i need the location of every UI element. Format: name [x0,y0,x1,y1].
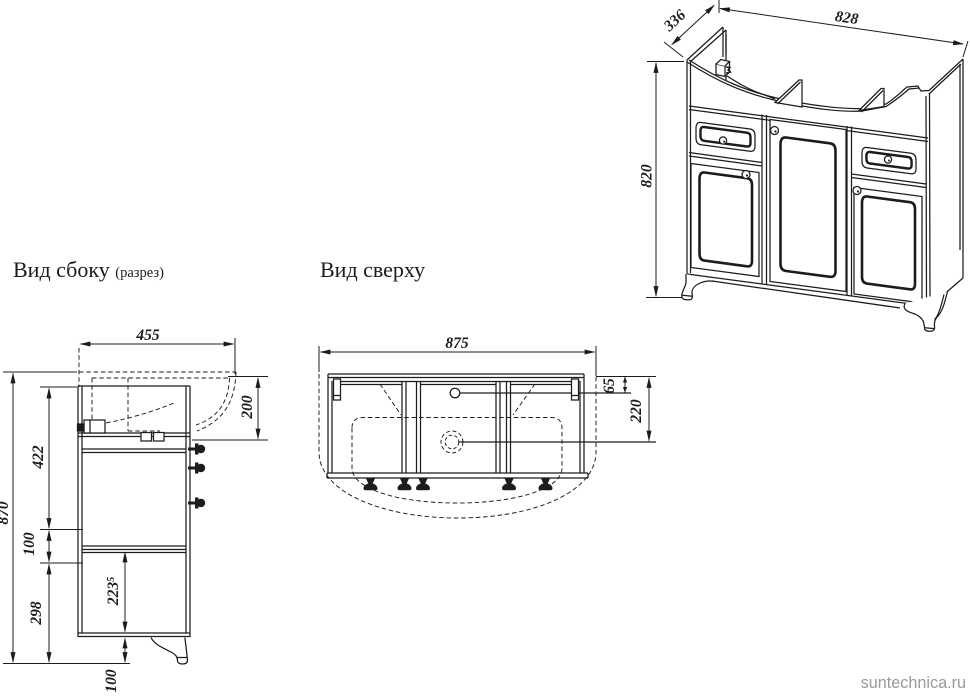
svg-text:336: 336 [660,6,690,35]
svg-text:65: 65 [601,378,618,394]
svg-text:422: 422 [30,445,47,470]
svg-text:875: 875 [445,335,469,352]
svg-text:100: 100 [21,532,38,556]
svg-text:870: 870 [0,501,12,525]
svg-text:100: 100 [103,669,120,693]
svg-text:220: 220 [628,399,645,424]
svg-text:828: 828 [834,8,860,28]
svg-text:2235: 2235 [105,577,122,606]
svg-text:455: 455 [135,327,160,344]
svg-text:298: 298 [28,601,45,626]
svg-text:820: 820 [639,164,656,188]
svg-text:200: 200 [239,395,256,420]
